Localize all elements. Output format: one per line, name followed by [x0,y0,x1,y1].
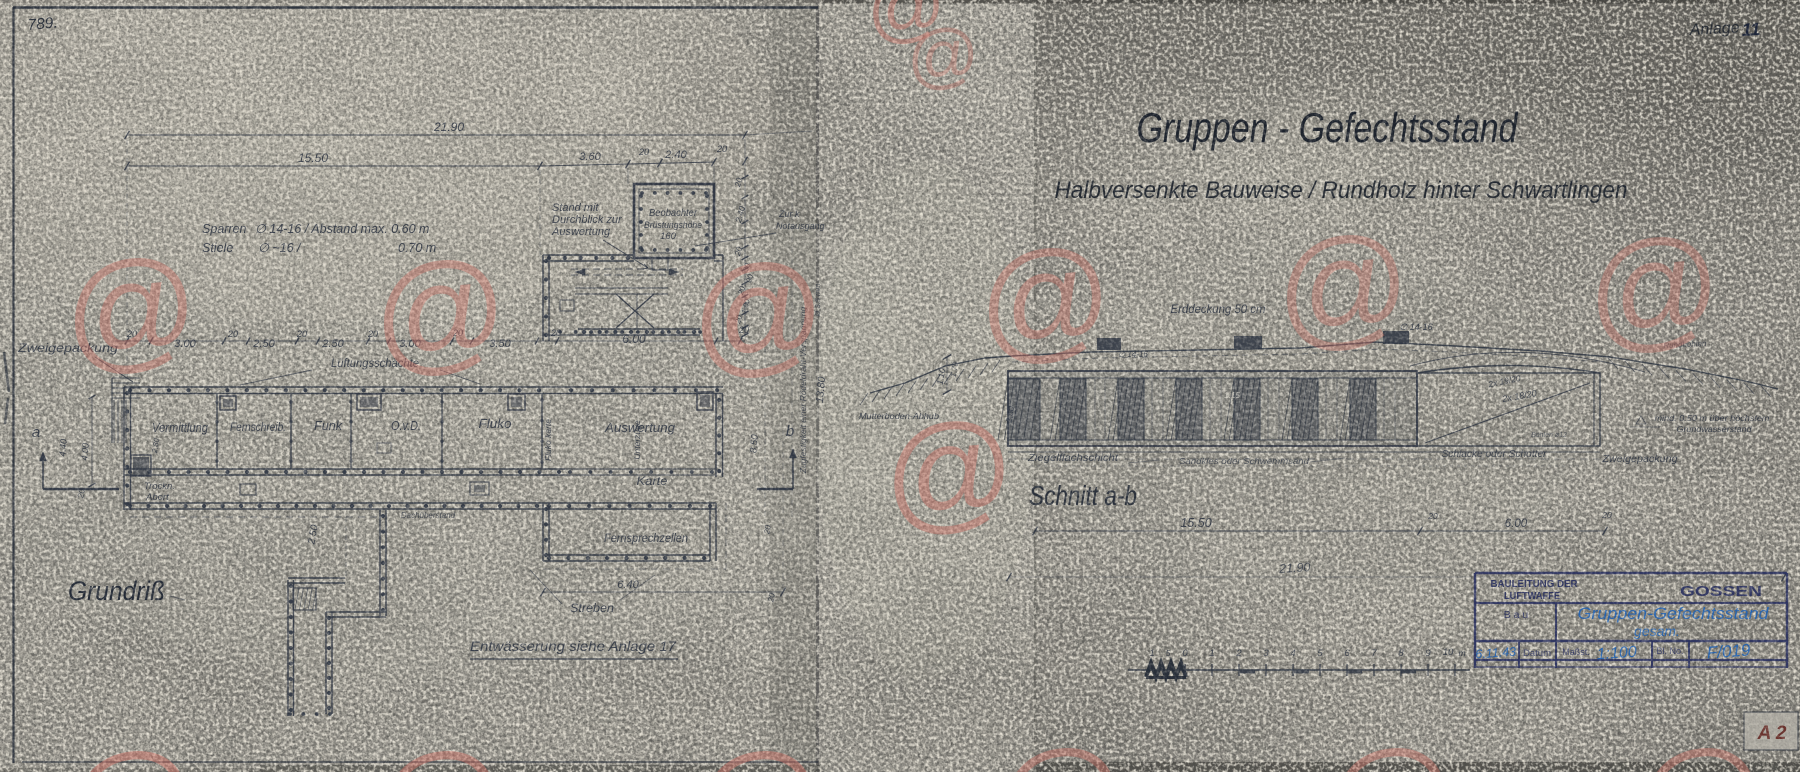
svg-text:@: @ [366,232,513,391]
svg-text:@: @ [57,230,204,389]
svg-text:@: @ [684,234,831,393]
svg-text:@: @ [971,220,1118,379]
svg-text:@: @ [903,13,983,99]
svg-text:@: @ [1580,209,1727,368]
svg-text:@: @ [1269,207,1416,366]
svg-text:@: @ [877,393,1021,550]
